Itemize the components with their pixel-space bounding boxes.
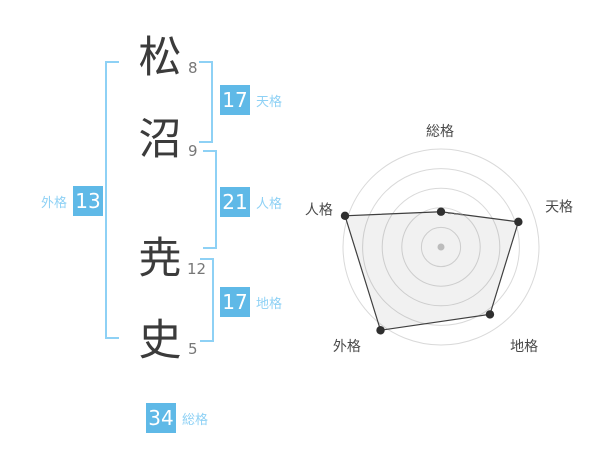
seimei-handan-result-panel: 松 沼 尭 史 8 9 12 5 17 天格 21 人格 17 地格 外格 13… bbox=[0, 0, 600, 470]
radar-point-総格 bbox=[437, 208, 445, 216]
radar-chart: 総格天格地格外格人格 bbox=[0, 0, 600, 470]
radar-point-人格 bbox=[341, 212, 349, 220]
radar-point-天格 bbox=[514, 218, 522, 226]
radar-point-外格 bbox=[376, 326, 384, 334]
radar-axis-label-総格: 総格 bbox=[426, 124, 454, 140]
radar-axis-label-地格: 地格 bbox=[510, 339, 538, 355]
radar-axis-label-外格: 外格 bbox=[333, 339, 361, 355]
radar-axis-label-天格: 天格 bbox=[545, 200, 573, 216]
radar-axis-label-人格: 人格 bbox=[305, 203, 333, 219]
radar-point-地格 bbox=[486, 310, 494, 318]
